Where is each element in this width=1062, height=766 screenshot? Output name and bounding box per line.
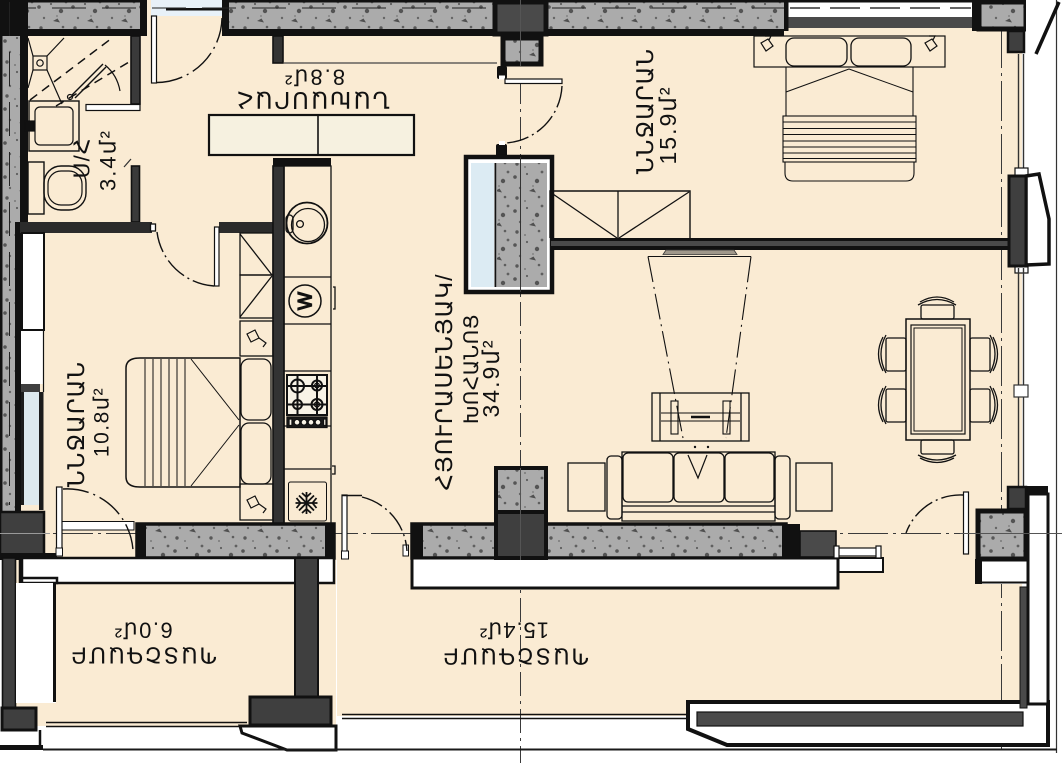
svg-text:ՊԱՏՇԳԱՄԲ: ՊԱՏՇԳԱՄԲ [69, 643, 217, 668]
svg-text:8.8մ²: 8.8մ² [283, 65, 345, 90]
svg-text:W: W [296, 292, 317, 310]
svg-text:10.8մ²: 10.8մ² [91, 387, 114, 457]
svg-text:ՊԱՏՇԳԱՄԲ: ՊԱՏՇԳԱՄԲ [441, 644, 589, 669]
svg-text:6.0մ²: 6.0մ² [113, 618, 172, 643]
svg-text:15.4մ²: 15.4մ² [479, 618, 549, 643]
svg-text:3.4մ²: 3.4մ² [96, 129, 121, 191]
svg-text:Ս/Հ: Ս/Հ [70, 138, 95, 179]
svg-text:ՀՅՈՒՐԱՍԵՆՅԱԿ/: ՀՅՈՒՐԱՍԵՆՅԱԿ/ [431, 274, 457, 491]
svg-text:ՆԱԽԱՍՐԱՀ: ՆԱԽԱՍՐԱՀ [235, 87, 390, 113]
svg-text:15.9մ²: 15.9մ² [655, 85, 681, 164]
svg-text:ՆՆՋԱՐԱՆ: ՆՆՋԱՐԱՆ [63, 361, 89, 487]
svg-text:34.9մ²: 34.9մ² [478, 338, 504, 417]
